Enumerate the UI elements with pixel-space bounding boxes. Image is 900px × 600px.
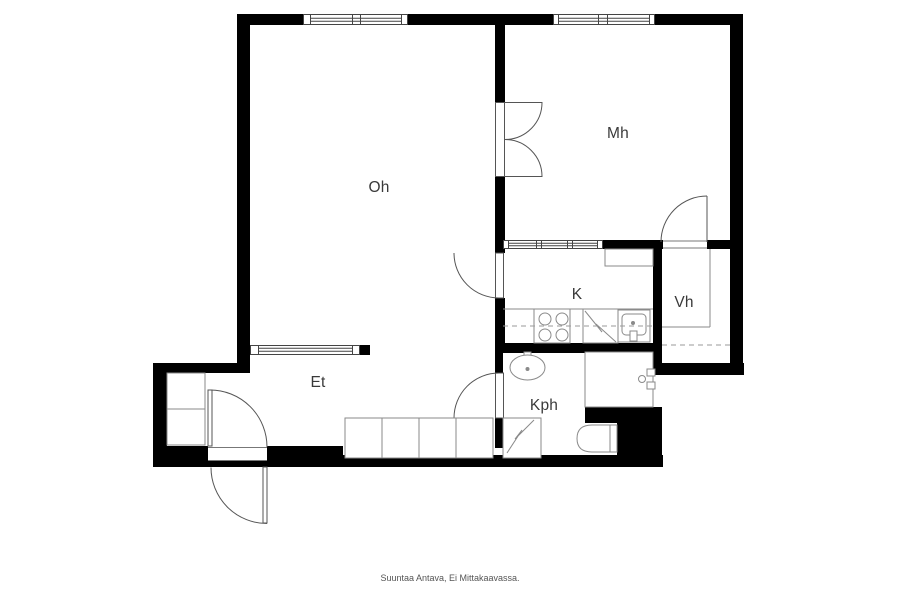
window-bar-post — [360, 345, 370, 355]
wall-shaft-b — [617, 423, 662, 467]
wall-right — [730, 14, 743, 375]
wall-et-kph-b — [495, 418, 503, 448]
vh-door-opening — [663, 240, 707, 249]
room-label-et: Et — [310, 374, 325, 392]
room-label-k: K — [572, 286, 583, 304]
window-oh-et — [251, 346, 360, 355]
kph-door — [454, 373, 504, 418]
et-cabinet-top — [167, 373, 205, 409]
wall-vh-bottom — [653, 363, 744, 375]
et-cabinet-bottom — [167, 409, 205, 445]
window-mh — [554, 15, 655, 25]
shower-icon — [503, 418, 541, 458]
room-label-mh: Mh — [607, 125, 629, 143]
wall-et-top — [153, 363, 250, 373]
windows — [251, 15, 655, 355]
wall-et-kph-a — [495, 345, 503, 373]
toilet-icon — [577, 425, 617, 452]
room-label-kph: Kph — [530, 397, 558, 415]
window-oh — [304, 15, 408, 25]
mh-double-door — [496, 103, 543, 177]
room-label-vh: Vh — [674, 294, 693, 312]
wall-left-oh — [237, 14, 250, 373]
vh-shelving — [662, 249, 730, 345]
vh-door — [661, 196, 707, 242]
disclaimer-caption: Suuntaa Antava, Ei Mittakaavassa. — [380, 573, 519, 583]
wall-oh-k — [495, 298, 505, 345]
wall-vh-top — [707, 240, 743, 249]
floor-plan-drawing — [0, 0, 900, 600]
room-label-oh: Oh — [368, 179, 389, 197]
wall-oh-mh-a — [495, 25, 505, 102]
floor-plan-page: Oh Mh K Vh Et Kph Suuntaa Antava, Ei Mit… — [0, 0, 900, 600]
upper-cabinet — [605, 249, 653, 266]
front-door-opening — [208, 446, 267, 461]
wall-k-mh-stub — [495, 240, 503, 249]
wardrobe-row — [345, 418, 493, 458]
wall-shaft-a — [585, 407, 662, 423]
kitchen-door — [454, 253, 504, 298]
washbasin-icon — [510, 352, 545, 380]
wall-k-mh — [603, 240, 663, 249]
window-kitchen — [504, 241, 603, 249]
wall-k-vh — [653, 249, 662, 375]
